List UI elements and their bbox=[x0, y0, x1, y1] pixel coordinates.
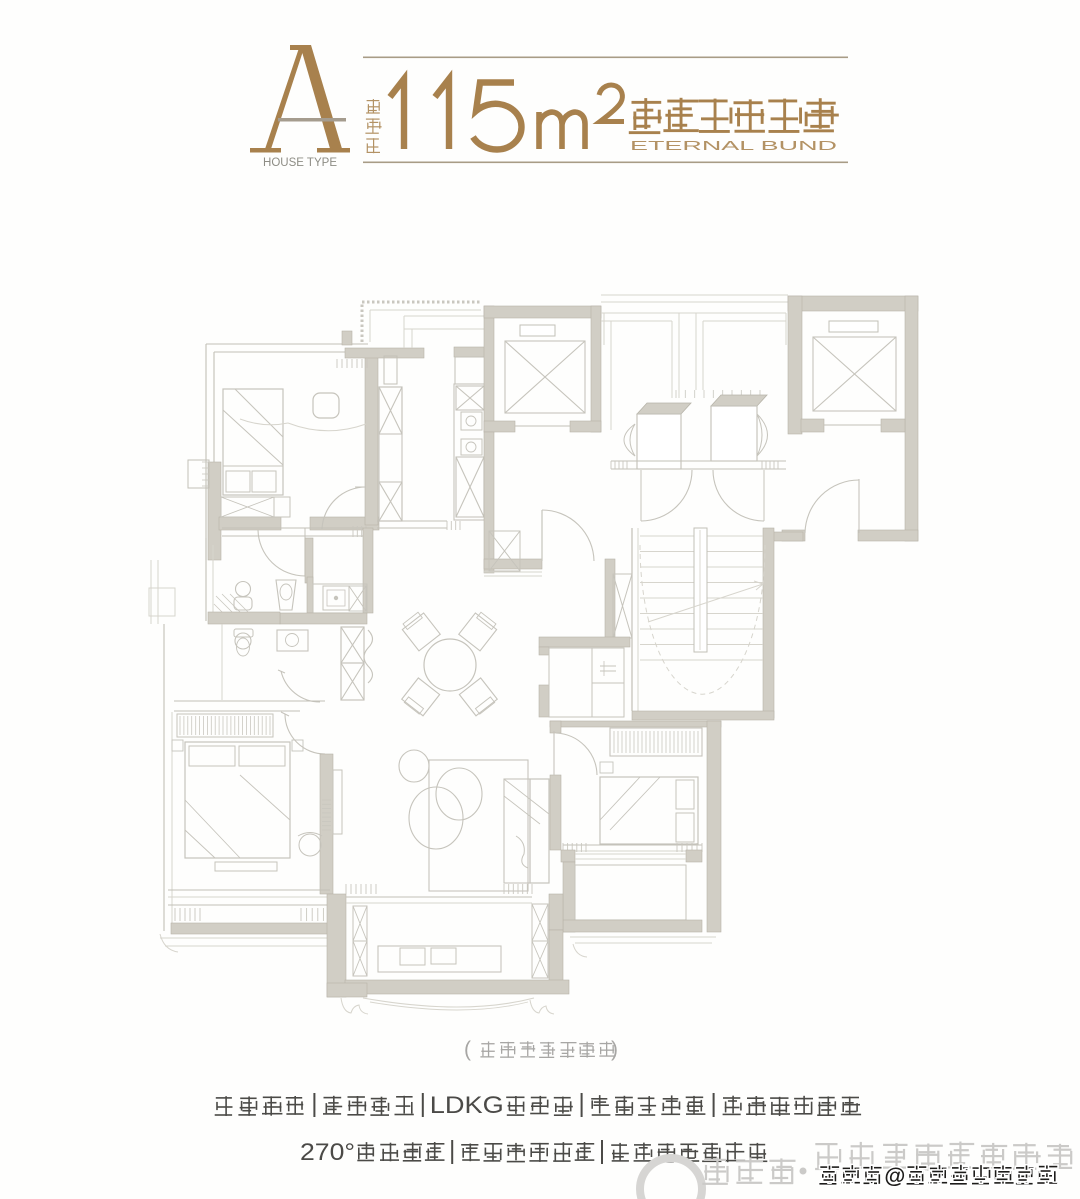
svg-text:HOUSE TYPE: HOUSE TYPE bbox=[263, 157, 337, 169]
svg-text:ETERNAL BUND: ETERNAL BUND bbox=[630, 139, 837, 153]
svg-text:LDKG: LDKG bbox=[430, 1092, 504, 1119]
svg-text:@: @ bbox=[884, 1164, 905, 1188]
svg-text:270°: 270° bbox=[300, 1139, 355, 1166]
svg-text:(: ( bbox=[464, 1038, 471, 1061]
svg-text:): ) bbox=[611, 1038, 618, 1061]
